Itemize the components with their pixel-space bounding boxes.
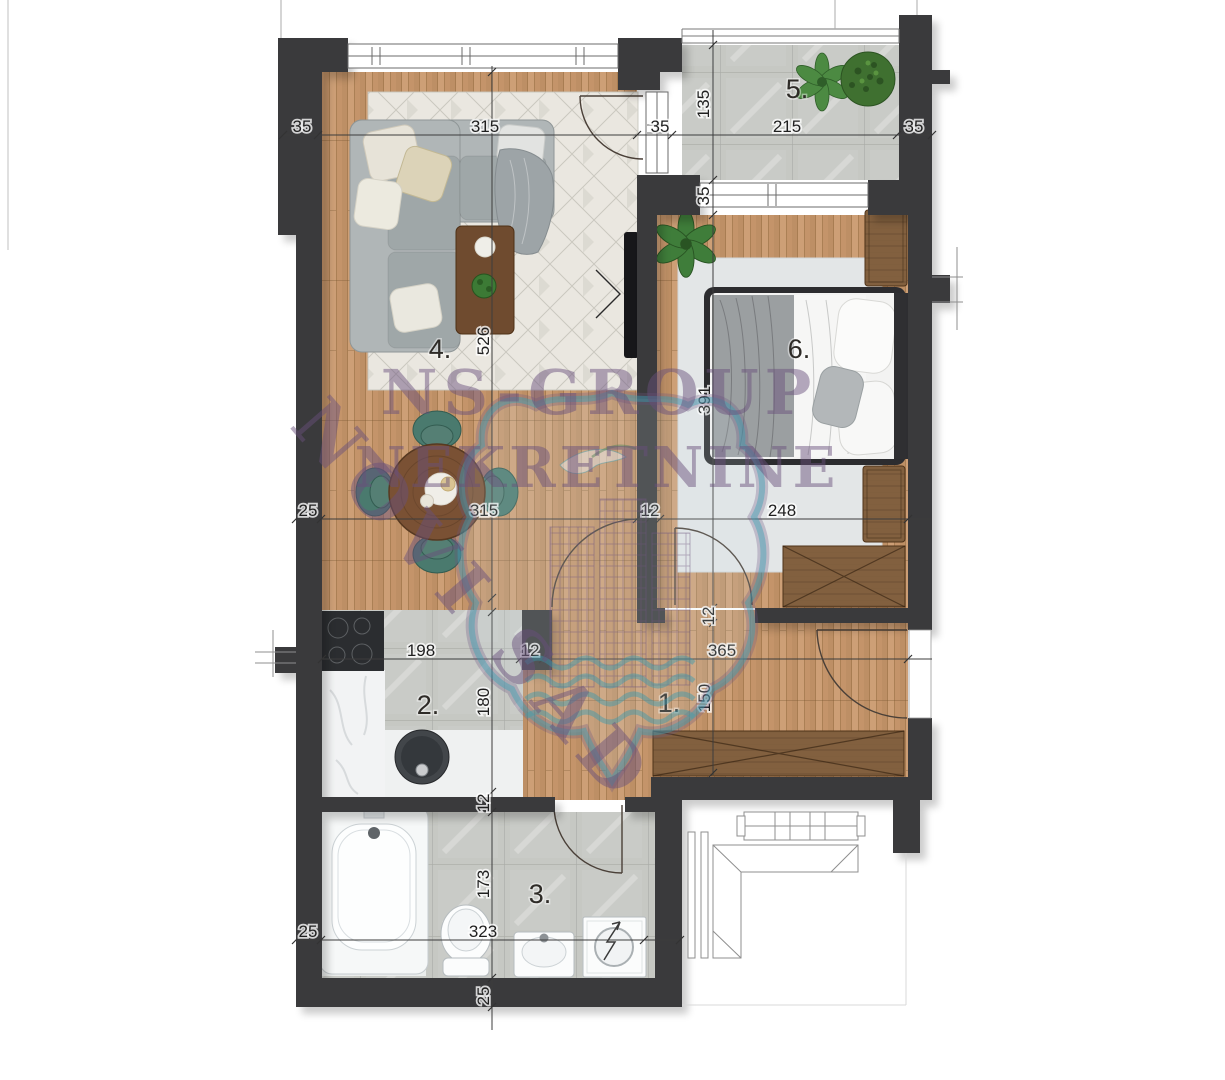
entrance-opening [909, 630, 931, 718]
dim-label: 180 [474, 688, 493, 716]
cooktop [322, 611, 384, 671]
coffee-table [456, 226, 514, 334]
dim-label: 25 [299, 501, 318, 520]
kitchen-counter-marble [322, 670, 385, 797]
kitchen-sink [395, 730, 449, 784]
dim-label: 315 [471, 117, 499, 136]
dim-label: 35 [694, 187, 713, 206]
bathtub [320, 806, 428, 974]
headboard [894, 293, 908, 459]
dim-label: 198 [407, 641, 435, 660]
dim-label: 25 [474, 987, 493, 1006]
tv [624, 232, 639, 358]
dim-label: 173 [474, 870, 493, 898]
room-label-terrace: 5. [786, 74, 809, 104]
room-label-bathroom: 3. [529, 879, 552, 909]
bathroom-sink [514, 932, 574, 977]
stairwell-outline [713, 845, 858, 958]
dim-label: 135 [694, 90, 713, 118]
washing-machine [583, 917, 646, 977]
stairwell-core [688, 812, 865, 958]
dim-label: 323 [469, 922, 497, 941]
dim-label: 35 [651, 117, 670, 136]
terrace-railing [682, 29, 899, 43]
watermark-line1: NS-GROUP [381, 356, 818, 429]
dim-label: 35 [905, 117, 924, 136]
hallway-wardrobe [653, 731, 904, 776]
bedroom-wardrobe [783, 546, 905, 607]
nightstand-bottom [863, 466, 905, 542]
floor-plan-canvas: 35 315 35 135 215 35 35 526 25 315 12 24… [0, 0, 1225, 1080]
dim-label: 35 [293, 117, 312, 136]
dim-label: 526 [474, 327, 493, 355]
dim-label: 12 [474, 794, 493, 813]
floor-plan: 35 315 35 135 215 35 35 526 25 315 12 24… [0, 0, 1225, 1080]
room-label-kitchen: 2. [417, 690, 440, 720]
dim-label: 25 [299, 922, 318, 941]
terrace-bush-icon [841, 52, 895, 106]
door-frame-lines [688, 832, 695, 958]
dim-label: 215 [773, 117, 801, 136]
dim-label: 248 [768, 501, 796, 520]
